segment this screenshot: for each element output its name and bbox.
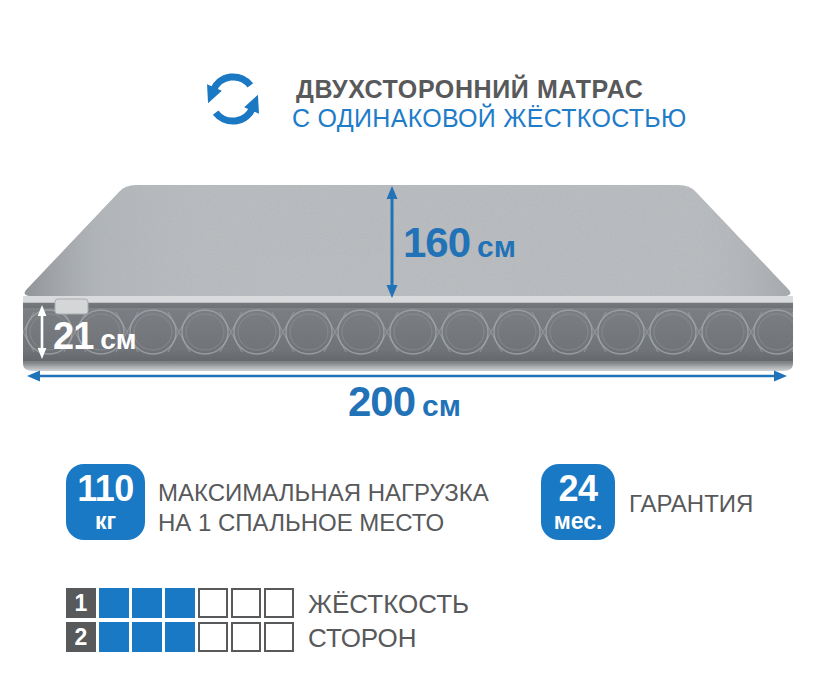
firmness-label-line1: ЖЁСТКОСТЬ bbox=[308, 590, 469, 618]
max-load-label-line1: МАКСИМАЛЬНАЯ НАГРУЗКА bbox=[158, 478, 489, 508]
firmness-indicator: 12 bbox=[66, 588, 294, 656]
dimension-length-unit: см bbox=[422, 389, 461, 422]
firmness-cell-filled bbox=[165, 588, 195, 618]
max-load-label-line2: НА 1 СПАЛЬНОЕ МЕСТО bbox=[158, 508, 489, 538]
firmness-row-number: 1 bbox=[66, 588, 96, 618]
max-load-unit: кг bbox=[95, 510, 116, 533]
dimension-height-label: 21см bbox=[53, 317, 137, 355]
firmness-row-number: 2 bbox=[66, 622, 96, 652]
firmness-row: 2 bbox=[66, 622, 294, 652]
warranty-value: 24 bbox=[558, 471, 597, 507]
max-load-badge: 110 кг bbox=[66, 464, 145, 540]
page-subtitle: С ОДИНАКОВОЙ ЖЁСТКОСТЬЮ bbox=[292, 104, 687, 133]
warranty-unit: мес. bbox=[554, 510, 603, 533]
firmness-cell-filled bbox=[165, 622, 195, 652]
dimension-height-value: 21 bbox=[53, 315, 93, 357]
firmness-cell-empty bbox=[198, 588, 228, 618]
dimension-width-value: 160 bbox=[403, 219, 470, 266]
warranty-label-line1: ГАРАНТИЯ bbox=[629, 489, 753, 519]
mattress-illustration: 160см 21см 200см bbox=[0, 165, 816, 385]
firmness-cell-empty bbox=[231, 622, 261, 652]
max-load-label: МАКСИМАЛЬНАЯ НАГРУЗКА НА 1 СПАЛЬНОЕ МЕСТ… bbox=[158, 478, 489, 538]
rotate-icon bbox=[203, 67, 263, 131]
firmness-cell-empty bbox=[231, 588, 261, 618]
dimension-width-unit: см bbox=[477, 230, 516, 263]
dimension-length-label: 200см bbox=[348, 381, 461, 423]
firmness-cell-filled bbox=[132, 622, 162, 652]
firmness-row: 1 bbox=[66, 588, 294, 618]
mattress-piping bbox=[23, 296, 793, 303]
firmness-cell-filled bbox=[132, 588, 162, 618]
firmness-cell-empty bbox=[264, 622, 294, 652]
firmness-label-line2: СТОРОН bbox=[308, 624, 417, 652]
firmness-cell-filled bbox=[99, 622, 129, 652]
mattress-bottom-band bbox=[23, 363, 793, 371]
firmness-cell-empty bbox=[264, 588, 294, 618]
dimension-height-unit: см bbox=[100, 324, 136, 355]
dimension-width-label: 160см bbox=[403, 222, 516, 264]
warranty-badge: 24 мес. bbox=[541, 464, 615, 540]
max-load-value: 110 bbox=[77, 471, 134, 507]
page-title: ДВУХСТОРОННИЙ МАТРАС bbox=[296, 75, 643, 104]
dimension-length-value: 200 bbox=[348, 378, 415, 425]
warranty-label: ГАРАНТИЯ bbox=[629, 489, 753, 519]
firmness-cell-filled bbox=[99, 588, 129, 618]
firmness-cell-empty bbox=[198, 622, 228, 652]
mattress-tab bbox=[55, 299, 88, 314]
